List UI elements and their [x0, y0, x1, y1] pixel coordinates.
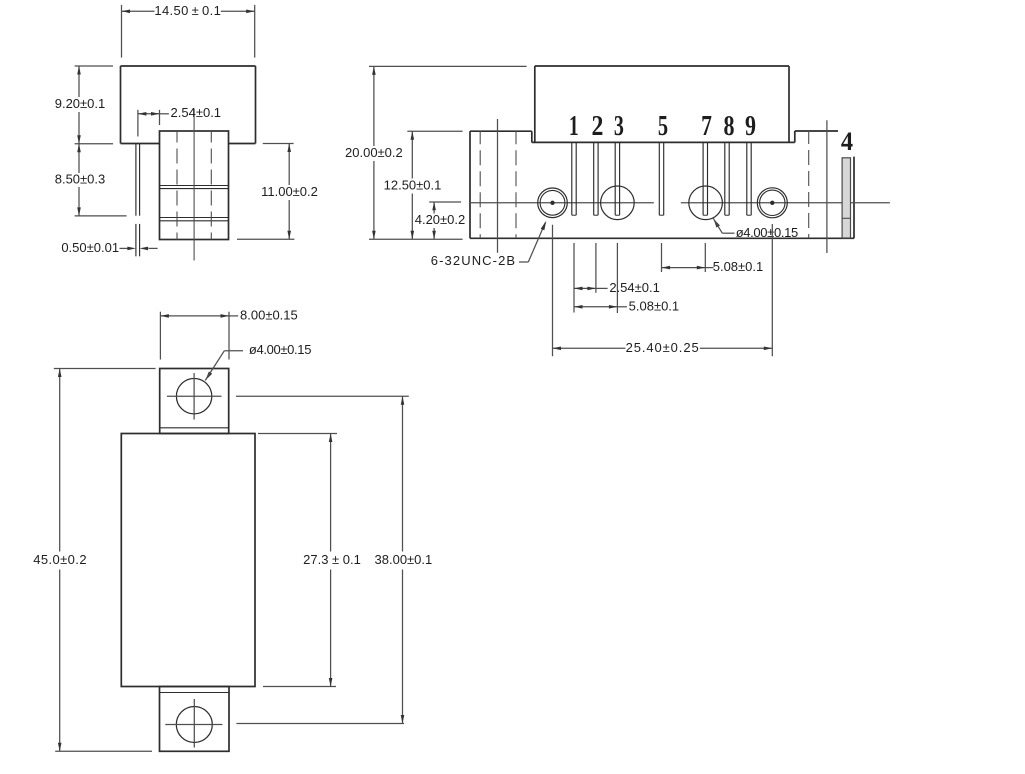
- svg-text:45.0±0.2: 45.0±0.2: [33, 552, 87, 567]
- svg-text:7: 7: [701, 111, 712, 142]
- svg-text:8.50±0.3: 8.50±0.3: [55, 171, 106, 186]
- svg-text:11.00±0.2: 11.00±0.2: [261, 184, 318, 199]
- svg-text:12.50±0.1: 12.50±0.1: [384, 177, 442, 192]
- svg-text:8.00±0.15: 8.00±0.15: [240, 307, 298, 322]
- svg-text:2.54±0.1: 2.54±0.1: [609, 280, 660, 295]
- svg-text:5.08±0.1: 5.08±0.1: [713, 259, 764, 274]
- svg-text:5: 5: [658, 111, 668, 142]
- svg-text:2.54±0.1: 2.54±0.1: [171, 105, 222, 120]
- svg-text:20.00±0.2: 20.00±0.2: [345, 145, 403, 160]
- svg-text:27.3 ± 0.1: 27.3 ± 0.1: [303, 552, 361, 567]
- svg-text:25.40±0.25: 25.40±0.25: [626, 340, 700, 355]
- svg-text:0.50±0.01: 0.50±0.01: [61, 240, 119, 255]
- svg-text:2: 2: [591, 111, 603, 142]
- svg-text:9.20±0.1: 9.20±0.1: [55, 96, 106, 111]
- svg-text:ø4.00±0.15: ø4.00±0.15: [736, 225, 798, 240]
- svg-text:9: 9: [745, 111, 756, 142]
- svg-text:38.00±0.1: 38.00±0.1: [375, 552, 433, 567]
- svg-text:1: 1: [569, 111, 579, 142]
- svg-text:ø4.00±0.15: ø4.00±0.15: [249, 342, 311, 357]
- svg-text:6-32UNC-2B: 6-32UNC-2B: [431, 253, 516, 268]
- svg-text:5.08±0.1: 5.08±0.1: [629, 298, 680, 313]
- svg-text:14.50 ± 0.1: 14.50 ± 0.1: [154, 3, 221, 18]
- svg-text:8: 8: [724, 111, 735, 142]
- svg-text:4.20±0.2: 4.20±0.2: [415, 212, 466, 227]
- svg-text:4: 4: [841, 126, 853, 156]
- svg-text:3: 3: [614, 111, 624, 142]
